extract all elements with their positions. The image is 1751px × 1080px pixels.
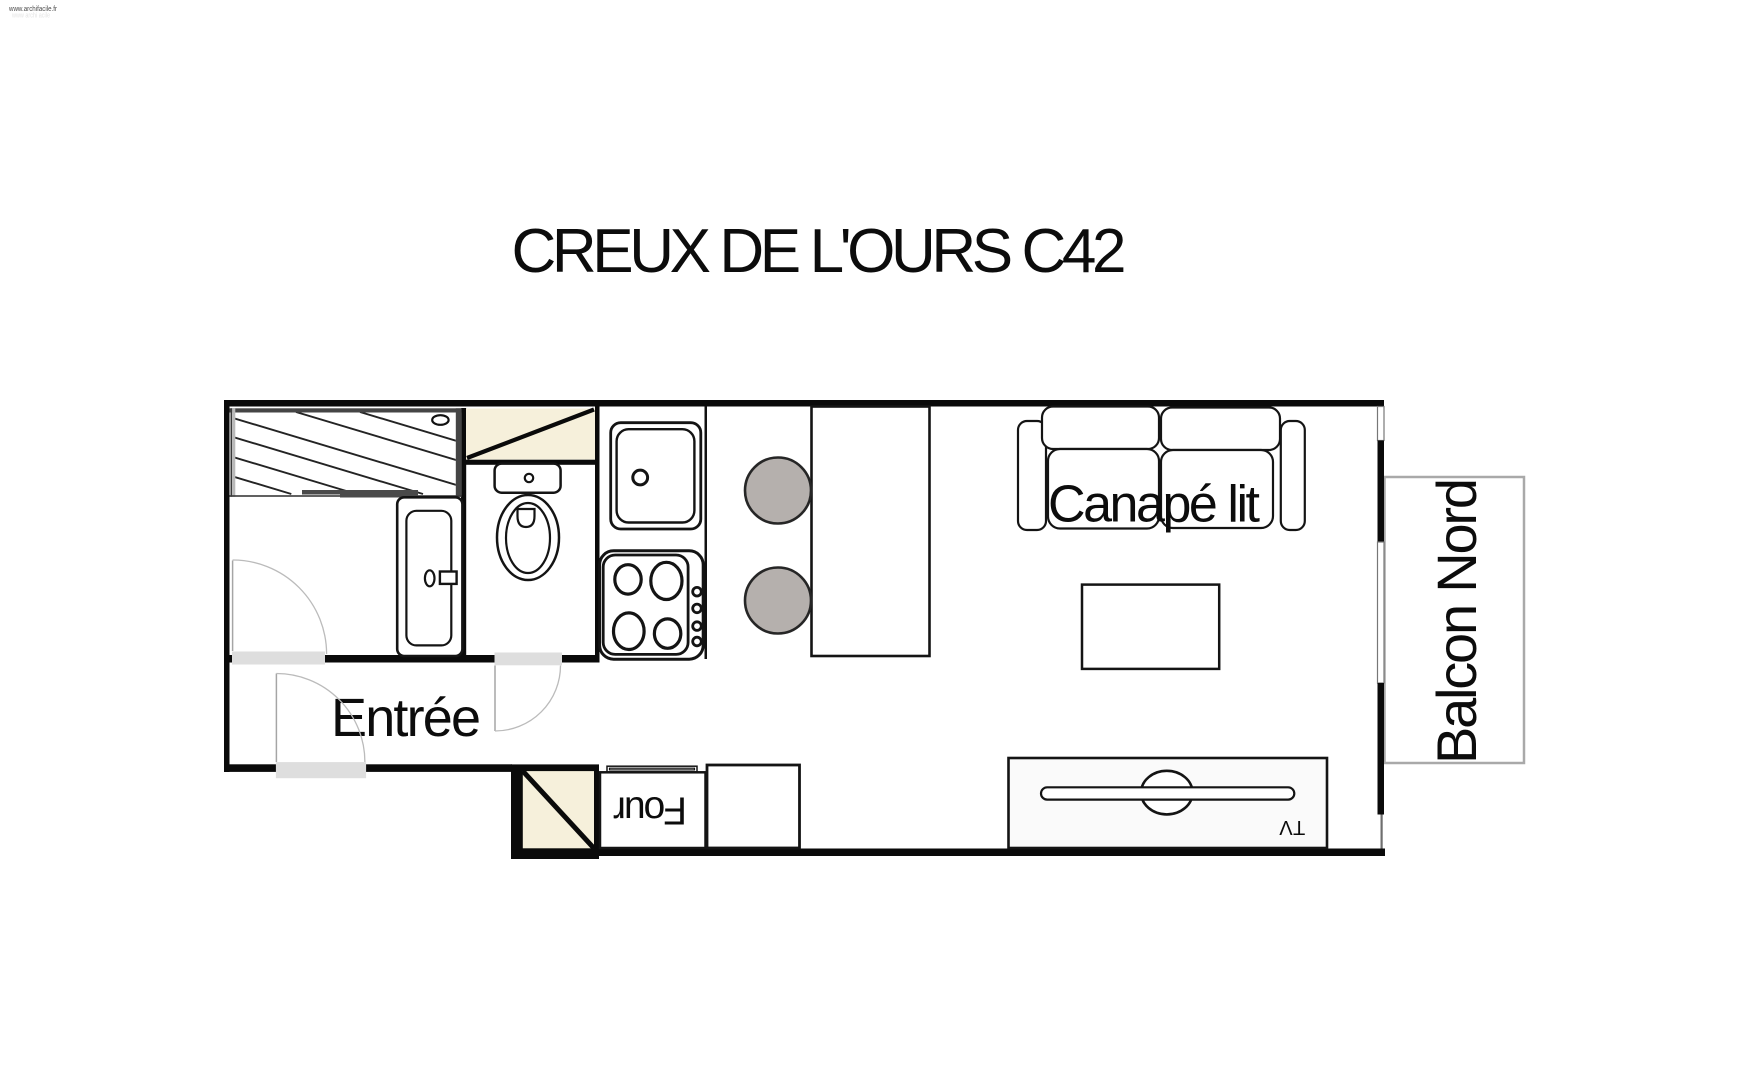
svg-text:Balcon Nord: Balcon Nord	[1425, 478, 1488, 764]
svg-text:CREUX DE L'OURS C42: CREUX DE L'OURS C42	[512, 217, 1127, 286]
svg-text:www archi acile: www archi acile	[11, 13, 50, 20]
svg-text:Canapé lit: Canapé lit	[1048, 476, 1261, 534]
svg-text:TV: TV	[1279, 816, 1306, 838]
svg-text:Four: Four	[613, 788, 687, 831]
